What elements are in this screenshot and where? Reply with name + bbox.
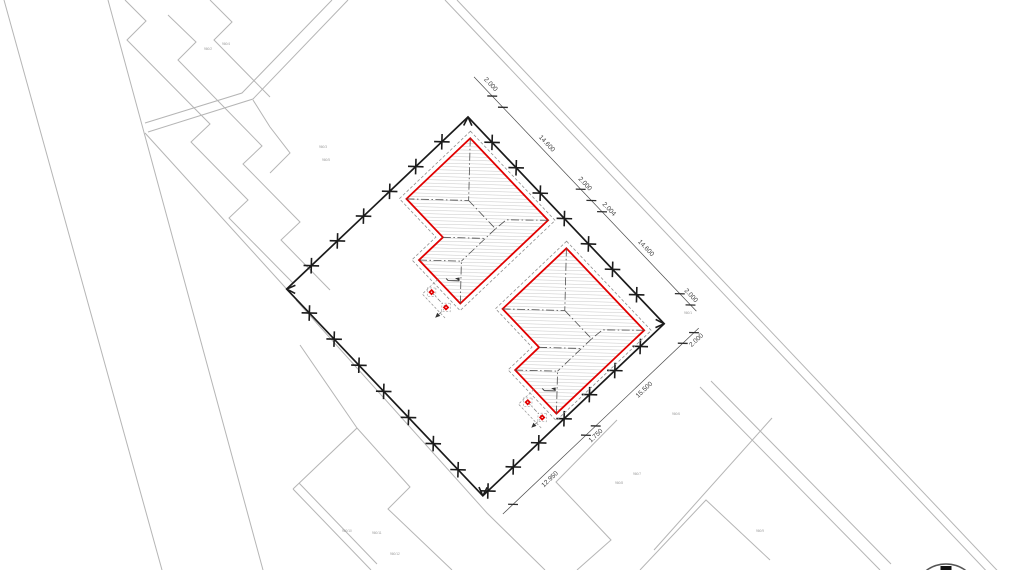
parcel-label: 960/6 — [672, 412, 680, 416]
parcel-label: 960/12 — [390, 552, 400, 556]
dim-label: 2.004 — [601, 201, 618, 218]
road-edge-east — [108, 0, 263, 570]
dim-label: 12.950 — [540, 470, 560, 489]
road-edge-west — [4, 0, 162, 570]
dim-label: 15.500 — [635, 380, 655, 399]
parcel-label: 960/3 — [319, 145, 327, 149]
parcel-label: 960/11 — [372, 531, 382, 535]
parcel-label: 960/7 — [633, 472, 641, 476]
north-arrow-icon — [913, 564, 979, 570]
background-parcel-lines — [4, 0, 1011, 570]
parcel-label: 960/10 — [342, 529, 352, 533]
site-plan-canvas: 2.000 14.600 2.000 2.004 14.600 2.000 2.… — [0, 0, 1011, 570]
parcel-label: 960/9 — [756, 529, 764, 533]
parcel-label: 960/2 — [204, 47, 212, 51]
parcel-label: 960/5 — [322, 158, 330, 162]
parcel-number-labels: 960/2 960/4 960/3 960/5 960/1 960/6 960/… — [204, 42, 764, 556]
parcel-label: 960/8 — [615, 481, 623, 485]
parcel-label: 960/1 — [684, 311, 692, 315]
site-plan-page: 2.000 14.600 2.000 2.004 14.600 2.000 2.… — [0, 0, 1011, 570]
dim-label: 2.000 — [688, 332, 705, 349]
dim-label: 2.000 — [482, 76, 499, 93]
parcel-label: 960/4 — [222, 42, 230, 46]
dim-label: 2.000 — [577, 176, 594, 193]
dim-label: 14.600 — [636, 239, 655, 259]
dim-label: 14.600 — [537, 134, 556, 154]
dim-label: 2.000 — [683, 287, 700, 304]
